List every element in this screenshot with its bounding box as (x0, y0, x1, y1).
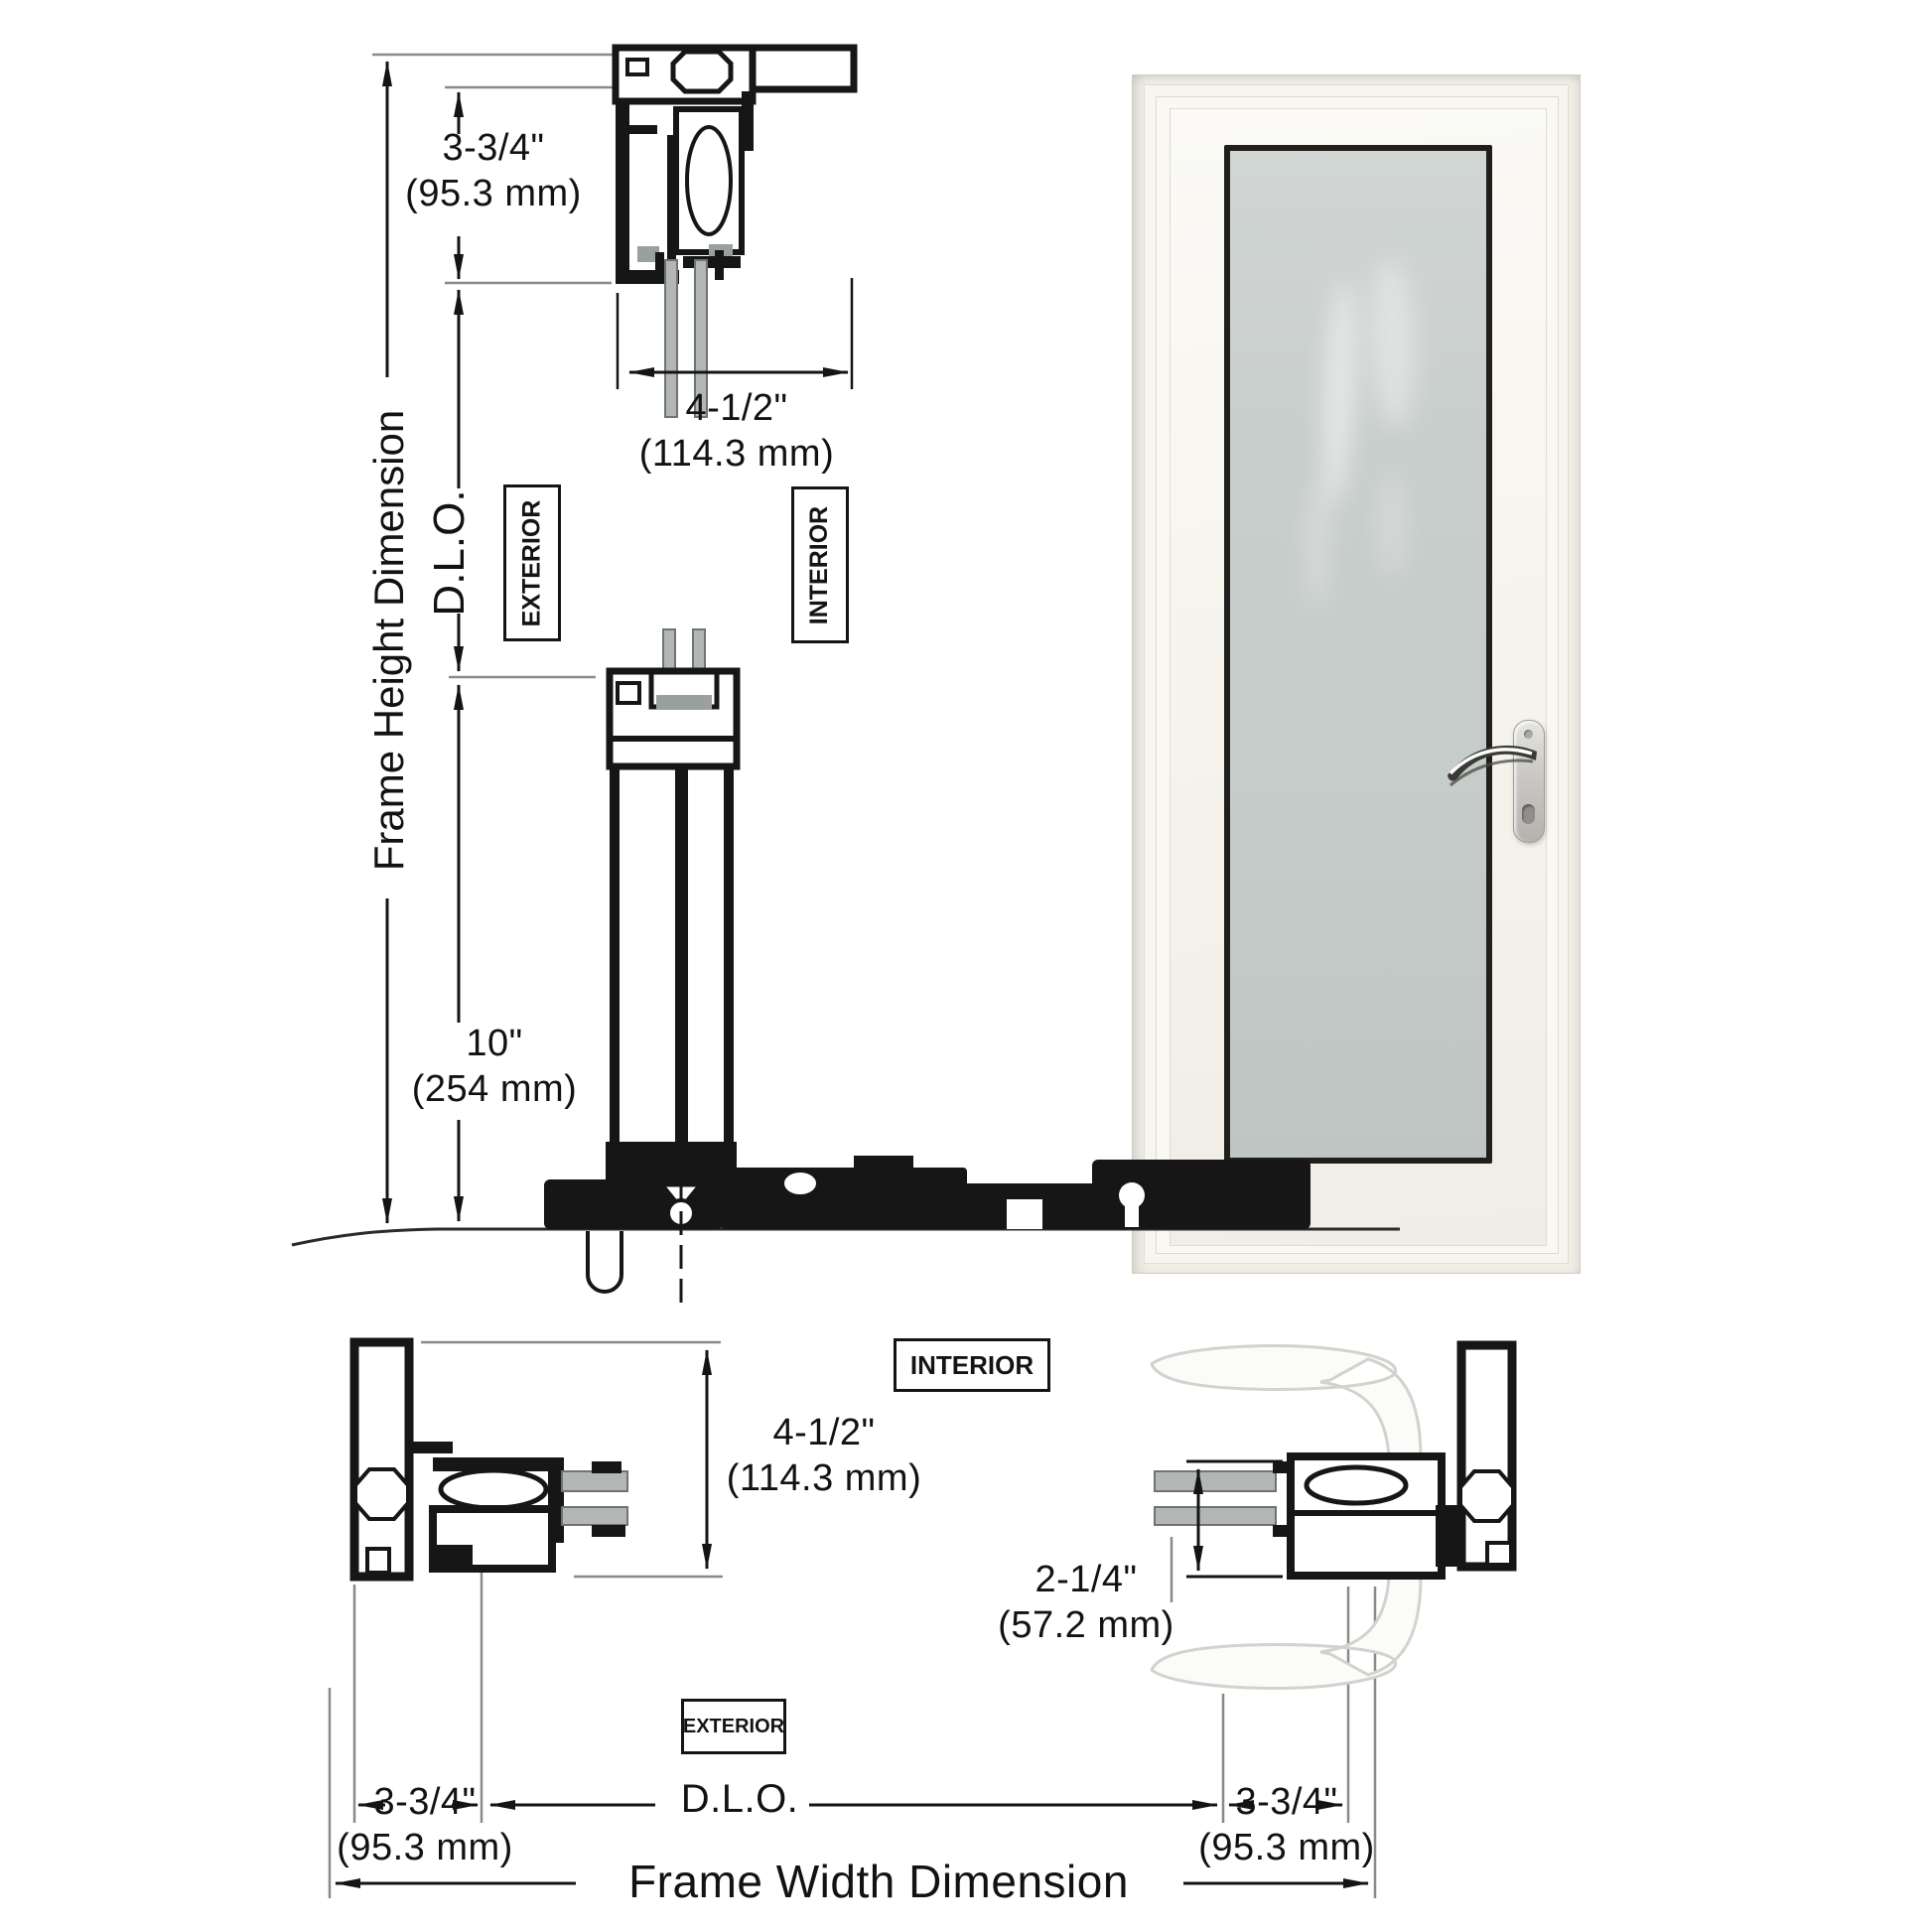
dim-lock-stile-mm: (57.2 mm) (998, 1606, 1174, 1644)
interior-tag-bottom: INTERIOR (894, 1338, 1050, 1392)
head-section-drawing (616, 48, 854, 417)
handle-silhouette-bottom (1152, 1577, 1421, 1689)
dim-lock-stile-inches: 2-1/4" (1035, 1561, 1137, 1598)
hinge-jamb-section-drawing (354, 1342, 627, 1577)
dim-jamb-right-inches: 3-3/4" (1235, 1783, 1337, 1821)
interior-tag-top: INTERIOR (791, 486, 849, 643)
dimension-lines (336, 62, 1368, 1883)
door-rail-section-drawing (610, 629, 737, 1154)
section-linework (0, 0, 1932, 1932)
dim-frame-depth-side-inches: 4-1/2" (772, 1414, 875, 1451)
dim-sill-riser-mm: (254 mm) (412, 1070, 578, 1108)
dlo-bottom-label: D.L.O. (681, 1779, 799, 1819)
diagram-page: 3-3/4" (95.3 mm) 4-1/2" (114.3 mm) 10" (… (0, 0, 1932, 1932)
dim-sill-riser-inches: 10" (466, 1025, 522, 1062)
dim-head-inches: 3-3/4" (442, 129, 544, 167)
exterior-tag-top: EXTERIOR (503, 484, 561, 641)
frame-height-label: Frame Height Dimension (365, 410, 413, 872)
door-handle-lever (1448, 746, 1537, 785)
lock-jamb-section-drawing (1152, 1345, 1513, 1689)
exterior-tag-bottom: EXTERIOR (681, 1699, 786, 1754)
frame-width-label: Frame Width Dimension (628, 1859, 1129, 1904)
dim-jamb-left-mm: (95.3 mm) (337, 1829, 513, 1866)
dim-frame-depth-top-mm: (114.3 mm) (639, 435, 834, 473)
dim-head-mm: (95.3 mm) (405, 175, 582, 212)
handle-silhouette-top (1152, 1345, 1421, 1457)
dim-frame-depth-side-mm: (114.3 mm) (727, 1459, 921, 1497)
dim-jamb-left-inches: 3-3/4" (373, 1783, 476, 1821)
dim-jamb-right-mm: (95.3 mm) (1198, 1829, 1375, 1866)
dim-frame-depth-top-inches: 4-1/2" (685, 389, 787, 427)
dlo-side-label: D.L.O. (425, 489, 475, 616)
